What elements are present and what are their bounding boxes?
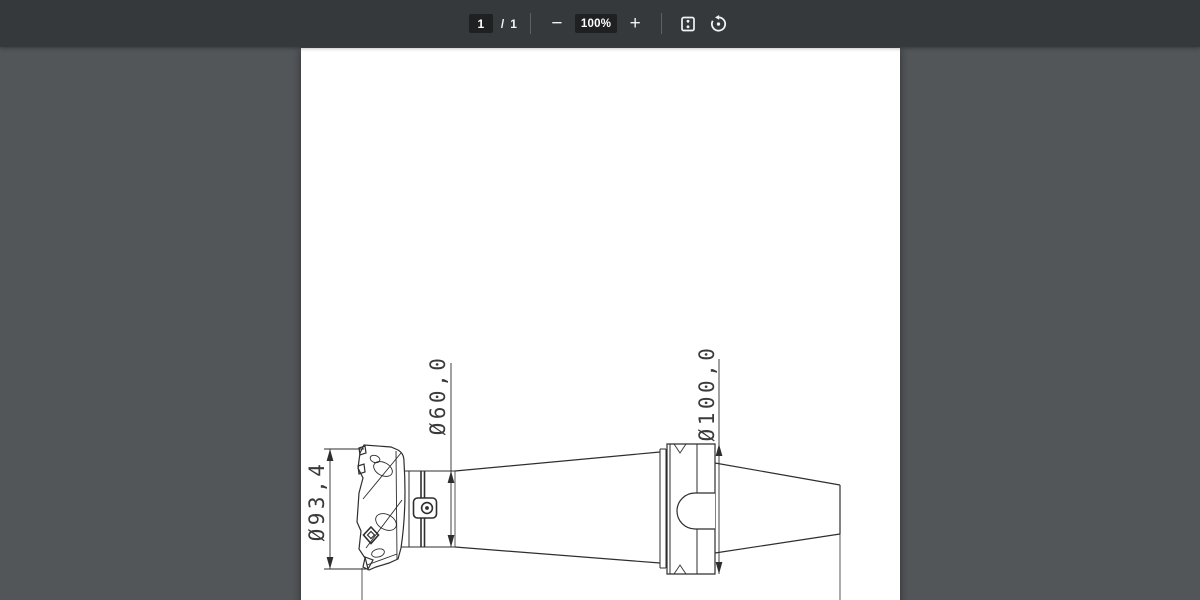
v-groove (674, 565, 686, 574)
toolbar-separator (530, 13, 531, 34)
pdf-viewer: / 1 − 100% + (0, 0, 1200, 600)
cutter-head (357, 445, 405, 570)
page-navigation: / 1 (469, 14, 517, 33)
chip-pocket (371, 459, 395, 480)
page-count: 1 (510, 17, 517, 31)
insert-tip (365, 557, 373, 569)
fit-to-page-icon (679, 15, 697, 33)
zoom-level-display: 100% (575, 14, 617, 33)
dimension-diameter-100-0: Ø100,0 (695, 345, 722, 574)
minus-icon: − (551, 14, 562, 33)
toolbar-separator (661, 13, 662, 34)
zoom-in-button[interactable]: + (622, 11, 648, 37)
plus-icon: + (630, 14, 641, 33)
rotate-button[interactable] (705, 11, 731, 37)
rotate-counterclockwise-icon (709, 14, 728, 33)
page-divider: / (501, 17, 504, 31)
zoom-out-button[interactable]: − (544, 11, 570, 37)
fit-page-button[interactable] (675, 11, 701, 37)
conical-body (455, 452, 660, 563)
v-groove (674, 444, 686, 453)
neck-section (401, 471, 455, 547)
dimension-label: Ø100,0 (695, 345, 719, 442)
pdf-page: Ø93,4 Ø60,0 Ø100,0 (301, 48, 900, 600)
viewer-content[interactable]: Ø93,4 Ø60,0 Ø100,0 (0, 47, 1200, 600)
dimension-diameter-93-4: Ø93,4 (305, 449, 366, 569)
drive-notch (677, 493, 715, 529)
page-number-input[interactable] (469, 14, 493, 33)
dimension-label: Ø60,0 (426, 355, 450, 436)
dimension-label: Ø93,4 (305, 461, 329, 542)
flange (660, 444, 715, 574)
insert-edge (359, 446, 366, 455)
technical-drawing: Ø93,4 Ø60,0 Ø100,0 (301, 48, 900, 600)
taper-shank (715, 463, 840, 600)
pdf-toolbar: / 1 − 100% + (0, 0, 1200, 47)
toolbar-controls: / 1 − 100% + (469, 11, 731, 37)
